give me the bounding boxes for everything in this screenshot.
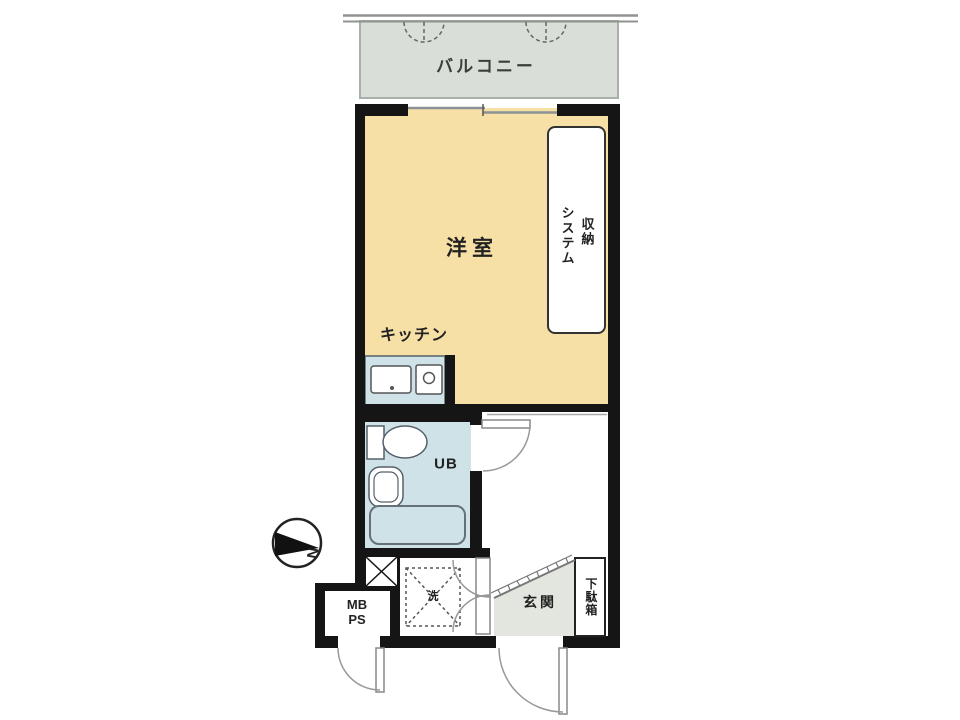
unit-bath-door <box>482 420 530 471</box>
front-door-leaf <box>559 648 567 714</box>
wall-ub-east-lower <box>470 471 482 556</box>
system-storage-closet <box>548 127 605 333</box>
north-compass <box>273 519 321 567</box>
balcony-label: バルコニー <box>436 57 536 77</box>
wall-left <box>355 104 365 591</box>
storage-label-right: 収納 <box>579 217 594 247</box>
western-room-label: 洋室 <box>446 237 498 261</box>
shoe-cabinet-label: 下駄箱 <box>583 578 597 617</box>
unit-bath-door-arc <box>483 424 530 471</box>
toilet-tank <box>367 426 384 459</box>
wall-bottom-seg3 <box>563 636 620 648</box>
laundry-label: 洗 <box>428 591 439 604</box>
unit-bath-label: UB <box>434 455 458 472</box>
floor-plan: バルコニー 洋室 収納 システム キッチン UB 洗 MB PS 玄関 下駄箱 … <box>0 0 960 720</box>
meter-box-label-line1: MB <box>347 598 367 613</box>
entrance-label: 玄関 <box>523 594 557 610</box>
kitchen-label: キッチン <box>380 327 448 345</box>
meter-box-door-arc <box>338 648 380 690</box>
wall-ub-east-upper <box>470 410 482 425</box>
meter-box-door-leaf <box>376 648 384 692</box>
unit-bath-door-leaf <box>482 420 530 428</box>
stove <box>416 365 442 394</box>
meter-box-label-line2: PS <box>347 613 367 628</box>
wall-kitchen-stub <box>445 355 455 410</box>
kitchen-fixtures <box>371 365 442 394</box>
wall-mb-left <box>315 583 325 648</box>
storage-label-left: システム <box>559 206 574 266</box>
meter-box-door <box>338 648 384 692</box>
double-door-leaf-bottom <box>476 596 490 634</box>
wall-room-corridor <box>482 404 608 412</box>
wall-ub-top <box>355 404 482 422</box>
toilet-bowl <box>383 426 427 458</box>
front-door <box>499 648 567 714</box>
kitchen-faucet <box>390 386 394 390</box>
floor-plan-drawing <box>0 0 960 720</box>
double-door-leaf-top <box>476 558 490 596</box>
front-door-arc <box>499 648 563 712</box>
pipe-shaft-box <box>365 556 398 587</box>
meter-box-label: MB PS <box>347 598 367 628</box>
bathtub <box>370 506 465 544</box>
wall-right <box>608 104 620 648</box>
